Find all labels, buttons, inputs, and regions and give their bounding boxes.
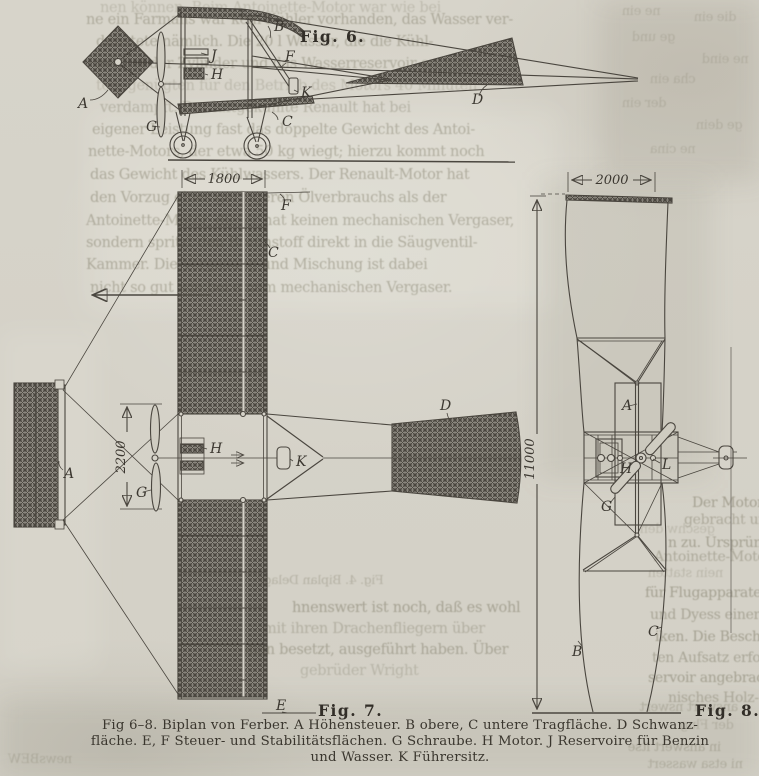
fig8-dim-11000: 11000 xyxy=(523,438,538,479)
fig6-label-D: D xyxy=(471,92,483,108)
fig6-label-H: H xyxy=(210,67,224,83)
caption-line-1: Fig 6–8. Biplan von Ferber. A Höhensteue… xyxy=(70,718,730,734)
fig8-dim-2000: 2000 xyxy=(594,173,628,188)
fig7-dim-1800: 1800 xyxy=(207,172,240,187)
fig6-side-view: A B C D F G H J K Fig. 6. xyxy=(76,7,638,162)
fig6-label-C: C xyxy=(282,114,293,130)
fig6-label-K: K xyxy=(300,85,313,101)
fig8-label-B: B xyxy=(571,644,582,660)
caption-line-3: und Wasser. K Führersitz. xyxy=(70,750,730,766)
scanned-book-page: nen können. Beim Antoinette-Motor war wi… xyxy=(0,0,759,776)
fig6-title: Fig. 6. xyxy=(300,27,365,46)
fig6-label-A: A xyxy=(76,96,88,112)
fig8-label-G: G xyxy=(601,499,612,515)
fig7-label-F: F xyxy=(280,198,292,214)
caption-line-2: fläche. E, F Steuer- und Stabilitätsfläc… xyxy=(70,734,730,750)
figure-caption: Fig 6–8. Biplan von Ferber. A Höhensteue… xyxy=(70,718,730,765)
fig7-label-G: G xyxy=(136,485,147,501)
fig7-dim-2200: 2200 xyxy=(114,440,129,474)
fig7-label-C: C xyxy=(268,245,279,261)
fig6-label-J: J xyxy=(208,48,218,64)
fig8-front-view: 2000 11000 xyxy=(523,172,759,720)
fig6-label-G: G xyxy=(146,119,157,135)
fig8-label-A: A xyxy=(620,398,632,414)
fig7-label-K: K xyxy=(295,454,308,470)
fig7-plan-view: 1800 xyxy=(14,170,521,720)
fig7-label-D: D xyxy=(439,398,451,414)
fig8-label-H: H xyxy=(619,461,633,477)
fig6-label-F: F xyxy=(284,49,296,65)
fig6-ground-line xyxy=(168,160,515,162)
fig8-label-L: L xyxy=(661,457,671,473)
fig6-label-B: B xyxy=(273,19,284,35)
fig8-label-C: C xyxy=(648,624,659,640)
fig7-label-A: A xyxy=(62,466,74,482)
technical-drawings: A B C D F G H J K Fig. 6. 1800 xyxy=(0,0,759,776)
fig7-label-H: H xyxy=(209,441,223,457)
fig7-label-E: E xyxy=(275,698,286,714)
